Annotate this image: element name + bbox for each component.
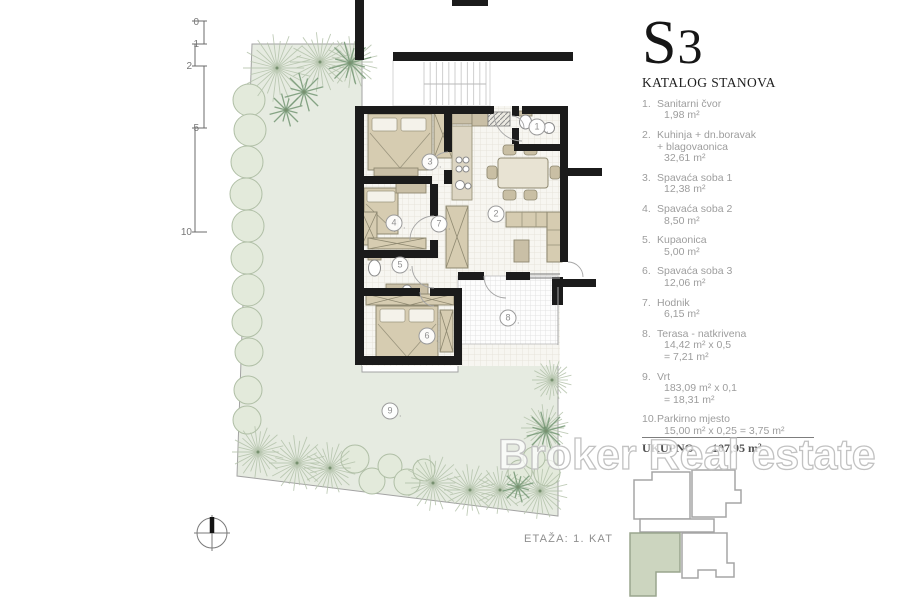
legend-item-area: 12,38 m² [642,184,894,196]
legend-item-name: Parkirno mjesto [657,413,730,425]
room-badge-1: 1. [529,119,546,136]
walls-part [458,272,484,280]
legend-item-name: Kupaonica [657,234,707,246]
shrub-icon [232,274,264,306]
pillow [401,118,426,131]
boiler [488,112,510,126]
catalog-title: KATALOG STANOVA [642,75,894,91]
north-compass-icon [194,515,230,551]
fan-tree-icon-part [329,467,332,470]
walls-part [355,0,364,60]
burner [456,166,462,172]
unit-code-char: S [642,9,677,77]
legend-item-name: Vrt [657,371,670,383]
kitchen-sink [465,183,471,189]
toilet [369,260,381,276]
legend-item-name: Kuhinja + dn.boravak [657,129,756,141]
walls-part [512,128,519,144]
sofa [547,212,562,262]
floor-plan-page: 012510 1.2.3.4.5.6.7.8.9. S3 KATALOG STA… [0,0,900,600]
legend-item-name: Spavaća soba 1 [657,172,732,184]
shrub-icon [232,307,262,337]
fan-tree-icon-part [469,489,472,492]
burner [463,166,469,172]
room-badge-dot: . [505,210,508,224]
legend-item-number: 3. [642,173,657,185]
coffee-table [514,240,529,262]
chair [503,190,516,200]
floor-label: ETAŽA: 1. KAT [524,533,613,545]
legend-item-number: 6. [642,266,657,278]
legend-item-area: = 18,31 m² [642,395,894,407]
room-badge-dot: . [439,158,442,172]
scale-tick-label: 1 [193,39,199,50]
walls-part [357,288,420,296]
unit-code-char: 3 [677,18,703,74]
fan-tree-icon-part [551,379,554,382]
upper-cabinet [472,112,488,126]
kitchen-sink [456,181,465,190]
burner [463,157,469,163]
legend-item-area: 5,00 m² [642,247,894,259]
unit-code: S3 [642,14,894,73]
palm-tree-icon-part [302,90,305,93]
walls-part [357,176,432,184]
shrub-icon [232,210,264,242]
room-badge-dot: . [403,219,406,233]
legend-item-area: 1,98 m² [642,110,894,122]
chair [524,190,537,200]
walls-part [393,52,573,61]
walls-part [444,106,452,152]
fan-tree-icon-part [257,451,260,454]
room-badge-6: 6. [419,328,436,345]
shrub-icon [234,114,266,146]
room-badge-dot: . [546,123,549,137]
legend-item-number: 1. [642,99,657,111]
shrub-icon [231,242,263,274]
legend-item-area: = 7,21 m² [642,352,894,364]
key-plan-unit [682,533,734,578]
walls-part [452,0,488,6]
room-badge-5: 5. [392,257,409,274]
shrub-icon [230,178,262,210]
palm-tree-icon-part [516,485,519,488]
walls-part [454,288,462,365]
room-badge-dot: . [517,314,520,328]
walls-part [512,106,519,116]
legend-item-name: Sanitarni čvor [657,98,721,110]
key-plan [630,470,741,596]
room-badge-2: 2. [488,206,505,223]
legend-item-number: 9. [642,372,657,384]
fan-tree-icon-part [499,489,502,492]
room-badge-4: 4. [386,215,403,232]
legend-item-area: 32,61 m² [642,153,894,165]
legend-item-number: 7. [642,298,657,310]
legend-item: 6.Spavaća soba 312,06 m² [642,266,894,289]
burner [456,157,462,163]
room-badge-dot: . [448,220,451,234]
legend-item-area: 8,50 m² [642,216,894,228]
room-badge-dot: . [399,407,402,421]
walls-part [564,168,602,176]
legend-item-name: Spavaća soba 3 [657,265,732,277]
pillow [367,191,395,202]
key-plan-corridor [640,519,714,532]
walls-part [506,272,530,280]
watermark: Broker Real estate [498,431,876,480]
scale-tick-label: 2 [186,61,192,72]
room-badge-dot: . [436,332,439,346]
legend-item-area: 6,15 m² [642,309,894,321]
legend-item: 7.Hodnik6,15 m² [642,298,894,321]
palm-tree-icon-part [348,61,351,64]
legend-item: 5.Kupaonica5,00 m² [642,235,894,258]
legend-item: 9.Vrt183,09 m² x 0,1= 18,31 m² [642,372,894,407]
pillow [372,118,397,131]
fan-tree-icon-part [319,61,322,64]
shrub-icon [341,445,369,473]
legend-item-number: 10. [642,414,657,426]
legend-item-number: 2. [642,130,657,142]
scale-bar-part: 012510 [181,17,200,238]
legend-item: 2.Kuhinja + dn.boravak+ blagovaonica32,6… [642,130,894,165]
shrub-icon [234,376,262,404]
room-badge-dot: . [409,261,412,275]
legend-item-number: 8. [642,329,657,341]
walls-part [552,279,596,287]
legend-item-number: 4. [642,204,657,216]
walls-part [514,144,568,151]
dresser [374,168,418,176]
scale-bar: 012510 [181,17,207,238]
legend-item-area: 12,06 m² [642,278,894,290]
legend-item-name: Hodnik [657,297,690,309]
chair [550,166,560,179]
walls-part [560,106,568,262]
legend-item: 8.Terasa - natkrivena14,42 m² x 0,5= 7,2… [642,329,894,364]
walls-part [355,106,364,365]
fan-tree-icon-part [539,490,542,493]
legend-item: 1.Sanitarni čvor1,98 m² [642,99,894,122]
scale-tick-label: 10 [181,227,193,238]
shrub-icon [233,406,261,434]
key-plan-highlight-unit [630,533,680,596]
fan-tree-icon-part [276,67,279,70]
scale-tick-label: 5 [193,123,199,134]
walls-part [357,106,494,114]
room-badge-7: 7. [431,216,448,233]
pillow [380,309,405,322]
walls-part [355,356,462,365]
pillow [409,309,434,322]
legend-item-number: 5. [642,235,657,247]
legend-item: 4.Spavaća soba 28,50 m² [642,204,894,227]
room-badge-8: 8. [500,310,517,327]
chair [487,166,497,179]
legend-item-name: Spavaća soba 2 [657,203,732,215]
door-arc [568,262,583,277]
walls-part [434,288,462,296]
stairwell [393,60,490,106]
shrub-icon [235,338,263,366]
palm-tree-icon-part [284,108,287,111]
fan-tree-icon-part [296,462,299,465]
legend-item-name: Terasa - natkrivena [657,328,746,340]
walls-part [430,184,438,216]
fan-tree-icon-part [432,482,435,485]
room-badge-9: 9. [382,403,399,420]
legend-items: 1.Sanitarni čvor1,98 m²2.Kuhinja + dn.bo… [642,99,894,438]
shrub-icon [233,84,265,116]
legend-item: 3.Spavaća soba 112,38 m² [642,173,894,196]
shrub-icon [231,146,263,178]
legend-panel: S3 KATALOG STANOVA 1.Sanitarni čvor1,98 … [642,14,894,446]
room-badge-3: 3. [422,154,439,171]
walls-part [444,170,452,184]
dining-table [498,158,548,188]
scale-tick-label: 0 [193,17,199,28]
